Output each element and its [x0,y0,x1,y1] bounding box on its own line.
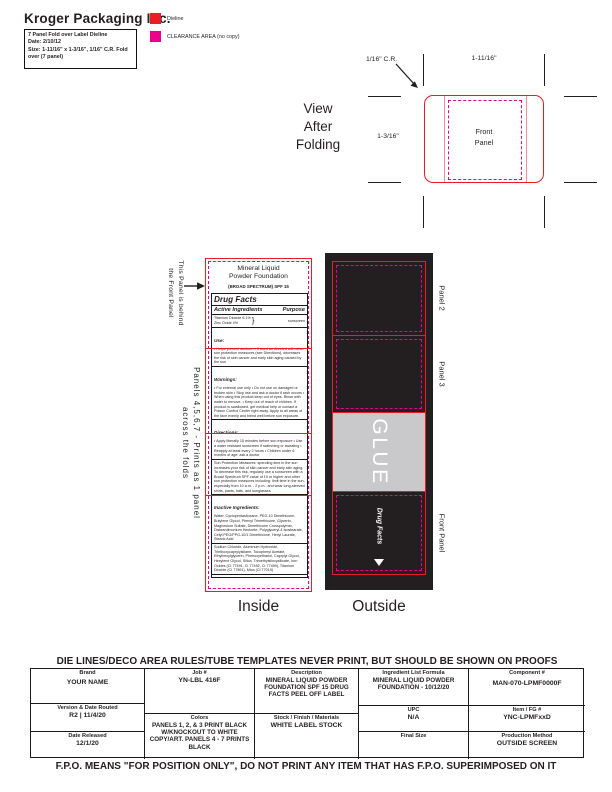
drug-facts-column-headers: Active Ingredients Purpose [212,306,307,315]
inside-caption: Inside [205,598,312,616]
description-value: MINERAL LIQUID POWDER FOUNDATION SPF 15 … [255,677,358,699]
behind-panel-note-line2: the Front Panel [165,260,175,325]
directions-continued-section: Sun Protection Measures: spending time i… [212,460,307,495]
width-dimension-label: 1-11/16" [424,55,544,62]
stock-value: WHITE LABEL STOCK [255,722,358,730]
front-panel-drug-facts-text: Drug Facts [376,508,383,545]
panel-3-clearance-area [336,339,422,409]
outside-caption: Outside [325,598,433,616]
fpo-footer-note: F.P.O. MEANS "FOR POSITION ONLY", DO NOT… [0,761,612,772]
colors-value: PANELS 1, 2, & 3 PRINT BLACK W/KNOCKOUT … [145,722,254,751]
trim-mark [564,182,597,183]
fold-line [205,495,312,496]
colors-label: Colors [145,715,254,721]
corner-radius-arrow-icon [392,60,428,96]
directions-section: Directions: • Apply liberally 15 minutes… [212,420,307,460]
date-released-cell: Date Released 12/1/20 [31,731,144,759]
inactive-continued-section: Sodium Chloride, Aluminum Hydroxide, Tri… [212,544,307,575]
front-panel-area: Drug Facts [332,491,426,575]
active-ingredient-2: Zinc Oxide 4% [214,321,251,325]
product-subtitle: (BROAD SPECTRUM) SPF 15 [206,284,311,289]
spec-box-line3: Size: 1-11/16" x 1-3/16", 1/16" C.R. Fol… [28,47,133,62]
warnings-text: • For external use only • Do not use on … [214,386,305,418]
job-cell: Job # YN-LBL 416F [144,669,254,713]
date-released-value: 12/1/20 [31,740,144,748]
directions-continued-text: Sun Protection Measures: spending time i… [214,461,305,493]
job-label: Job # [145,670,254,676]
trim-mark [423,196,424,228]
panel-3-area [332,335,426,413]
fold-line [205,433,312,434]
version-value: R2 | 11/4/20 [31,712,144,720]
brand-value: YOUR NAME [31,679,144,687]
panel-2-area [332,261,426,336]
colors-cell: Colors PANELS 1, 2, & 3 PRINT BLACK W/KN… [144,713,254,759]
component-cell: Component # MAN-070-LPMF0000F [468,669,585,705]
item-label: Item / FG # [469,707,585,713]
glue-area: GLUE [332,412,426,492]
fold-view-title: View After Folding [281,100,355,153]
trim-mark [544,196,545,228]
component-value: MAN-070-LPMF0000F [469,680,585,688]
spec-box: 7 Panel Fold over Label Dieline Date: 2/… [24,29,137,69]
brand-cell: Brand YOUR NAME [31,669,144,703]
company-title: Kroger Packaging Inc. [24,11,171,26]
stock-label: Stock / Finish / Materials [255,715,358,721]
clearance-color-swatch [150,31,161,42]
spec-box-line1: 7 Panel Fold over Label Dieline [28,32,133,39]
directions-text: • Apply liberally 15 minutes before sun … [214,439,305,458]
panels-print-note-line1: Panels 4,5,6,7 - Prints as 1 panel [191,367,202,519]
inactive-ingredients-text: Water, Cyclopentasiloxane, PEG-10 Dimeth… [214,514,305,542]
panel-2-side-label: Panel 2 [438,285,447,310]
final-size-cell: Final Size [358,731,468,759]
product-label-header: Mineral Liquid Powder Foundation (BROAD … [206,265,311,289]
fold-view-front-panel-label: Front Panel [424,127,544,149]
version-cell: Version & Date Routed R2 | 11/4/20 [31,703,144,731]
active-ingredients-header: Active Ingredients [214,307,263,313]
peel-triangle-icon [374,559,384,566]
item-cell: Item / FG # YNC-LPMFxxD [468,705,585,731]
drug-facts-box: Drug Facts Active Ingredients Purpose Ti… [211,293,308,578]
spec-box-line2: Date: 2/10/12 [28,39,133,46]
other-information-section: Other Information: • Protect this produc… [212,575,307,578]
outside-dieline-strip: GLUE Drug Facts [325,253,433,590]
item-value: YNC-LPMFxxD [469,714,585,722]
production-label: Production Method [469,733,585,739]
behind-panel-note-line1: This Panel is behind [175,260,185,325]
trim-mark [544,54,545,86]
upc-label: UPC [359,707,468,713]
ingredient-cell: Ingredient List Formula MINERAL LIQUID P… [358,669,468,705]
dieline-color-swatch [150,13,161,24]
panel-3-side-label: Panel 3 [438,361,447,386]
behind-panel-note: This Panel is behind the Front Panel [165,260,185,325]
version-label: Version & Date Routed [31,705,144,711]
panel-behind-arrow-icon [183,279,207,293]
glue-label: GLUE [367,418,391,485]
final-size-label: Final Size [359,733,468,739]
clearance-legend-label: CLEARANCE AREA (no copy) [167,34,240,40]
panels-print-note: Panels 4,5,6,7 - Prints as 1 panel acros… [180,367,202,519]
production-cell: Production Method OUTSIDE SCREEN [468,731,585,759]
ingredient-label: Ingredient List Formula [359,670,468,676]
active-ingredients-row: Titanium Dioxide 6.1% Zinc Oxide 4% } su… [212,315,307,328]
purpose-header: Purpose [283,307,305,313]
brace-glyph: } [252,316,255,326]
ingredient-value: MINERAL LIQUID POWDER FOUNDATION - 10/12… [359,677,468,691]
description-label: Description [255,670,358,676]
inactive-continued-text: Sodium Chloride, Aluminum Hydroxide, Tri… [214,545,305,573]
inactive-ingredients-heading: Inactive Ingredients: [214,505,260,510]
warnings-section: Warnings: • For external use only • Do n… [212,367,307,420]
description-cell: Description MINERAL LIQUID POWDER FOUNDA… [254,669,358,713]
production-value: OUTSIDE SCREEN [469,740,585,748]
die-lines-banner: DIE LINES/DECO AREA RULES/TUBE TEMPLATES… [30,656,584,667]
date-released-label: Date Released [31,733,144,739]
fold-line [205,348,312,349]
height-dimension-label: 1-3/16" [360,133,416,140]
purpose-value: sunscreen [288,319,305,323]
spec-table: Brand YOUR NAME Version & Date Routed R2… [30,668,584,758]
front-panel-side-label: Front Panel [438,514,447,553]
trim-mark [564,96,597,97]
stock-cell: Stock / Finish / Materials WHITE LABEL S… [254,713,358,759]
warnings-heading: Warnings: [214,377,237,382]
use-text: • Helps prevent sunburn • If used as dir… [214,347,305,366]
trim-mark [368,182,401,183]
product-title: Mineral Liquid Powder Foundation [206,265,311,282]
upc-cell: UPC N/A [358,705,468,731]
component-label: Component # [469,670,585,676]
trim-mark [368,96,401,97]
inside-dieline-strip: Mineral Liquid Powder Foundation (BROAD … [205,258,312,592]
panel-2-clearance-area [336,265,422,332]
brand-label: Brand [31,670,144,676]
drug-facts-title: Drug Facts [212,294,307,306]
use-heading: Use: [214,338,224,343]
panels-print-note-line2: across the folds [180,367,191,519]
dieline-legend-label: Dieline [167,16,183,22]
job-value: YN-LBL 416F [145,677,254,685]
upc-value: N/A [359,714,468,722]
inactive-ingredients-section: Inactive Ingredients: Water, Cyclopentas… [212,495,307,544]
